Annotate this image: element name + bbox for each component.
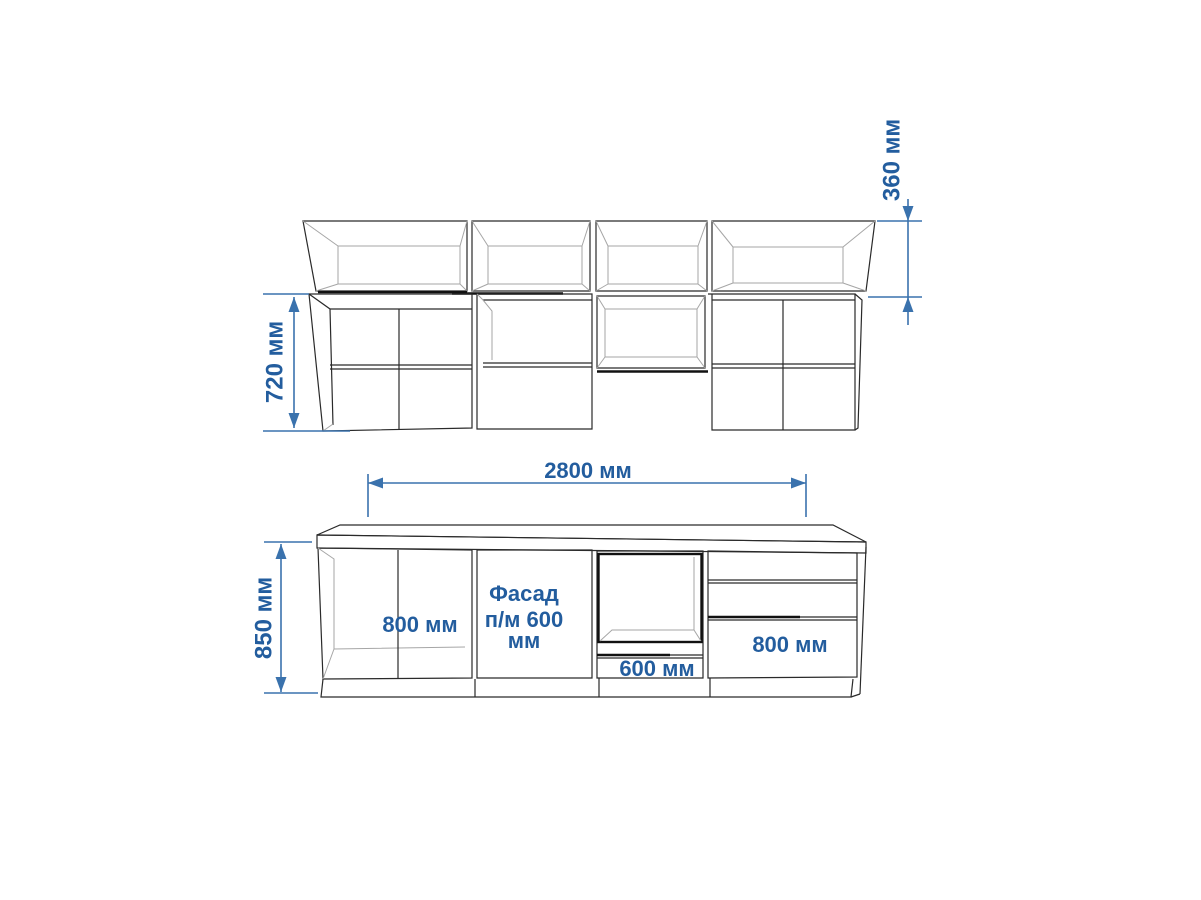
base-cabinet-oven-600: 600 мм — [597, 551, 703, 681]
dim-label-850: 850 мм — [250, 577, 277, 659]
dimension-850mm: 850 мм — [250, 542, 318, 693]
dimension-720mm: 720 мм — [261, 294, 350, 431]
wall-cabinets-view: 360 мм 720 мм — [261, 119, 922, 431]
wall-cabinet-top-box-4 — [712, 221, 875, 291]
dim-label-2800: 2800 мм — [544, 458, 632, 483]
wall-cabinet-top-box-3 — [596, 221, 707, 291]
wall-cabinet-top-box-2 — [472, 221, 590, 291]
base-cabinet-dishwasher-facade: Фасад п/м 600 мм — [477, 550, 592, 678]
wall-cabinet-top-box-1 — [303, 221, 467, 291]
wall-cabinet-tops-row — [303, 221, 875, 294]
drawing-page: 360 мм 720 мм 2800 мм — [0, 0, 1201, 900]
dimension-360mm: 360 мм — [868, 119, 922, 325]
label-section-800-left: 800 мм — [382, 612, 457, 637]
base-cabinet-800-open: 800 мм — [318, 548, 472, 679]
label-section-800-right: 800 мм — [752, 632, 827, 657]
wall-cabinet-hood-600 — [597, 296, 708, 372]
label-facade-line1: Фасад — [489, 581, 559, 606]
plinth — [321, 678, 860, 697]
base-cabinets-view: 2800 мм 800 мм Фасад п/м 600 мм — [250, 458, 866, 697]
dimension-2800mm: 2800 мм — [368, 458, 806, 517]
wall-cabinet-600 — [477, 294, 592, 429]
base-cabinet-800-drawers: 800 мм — [708, 547, 866, 694]
wall-cabinet-800-left — [309, 294, 472, 431]
label-section-600: 600 мм — [619, 656, 694, 681]
dim-label-720: 720 мм — [261, 321, 288, 403]
wall-cabinet-fronts-row — [309, 294, 862, 431]
dim-label-360: 360 мм — [878, 119, 905, 201]
label-facade-line3: мм — [508, 628, 541, 653]
kitchen-dimension-drawing: 360 мм 720 мм 2800 мм — [0, 0, 1201, 900]
wall-cabinet-800-right — [708, 294, 862, 430]
